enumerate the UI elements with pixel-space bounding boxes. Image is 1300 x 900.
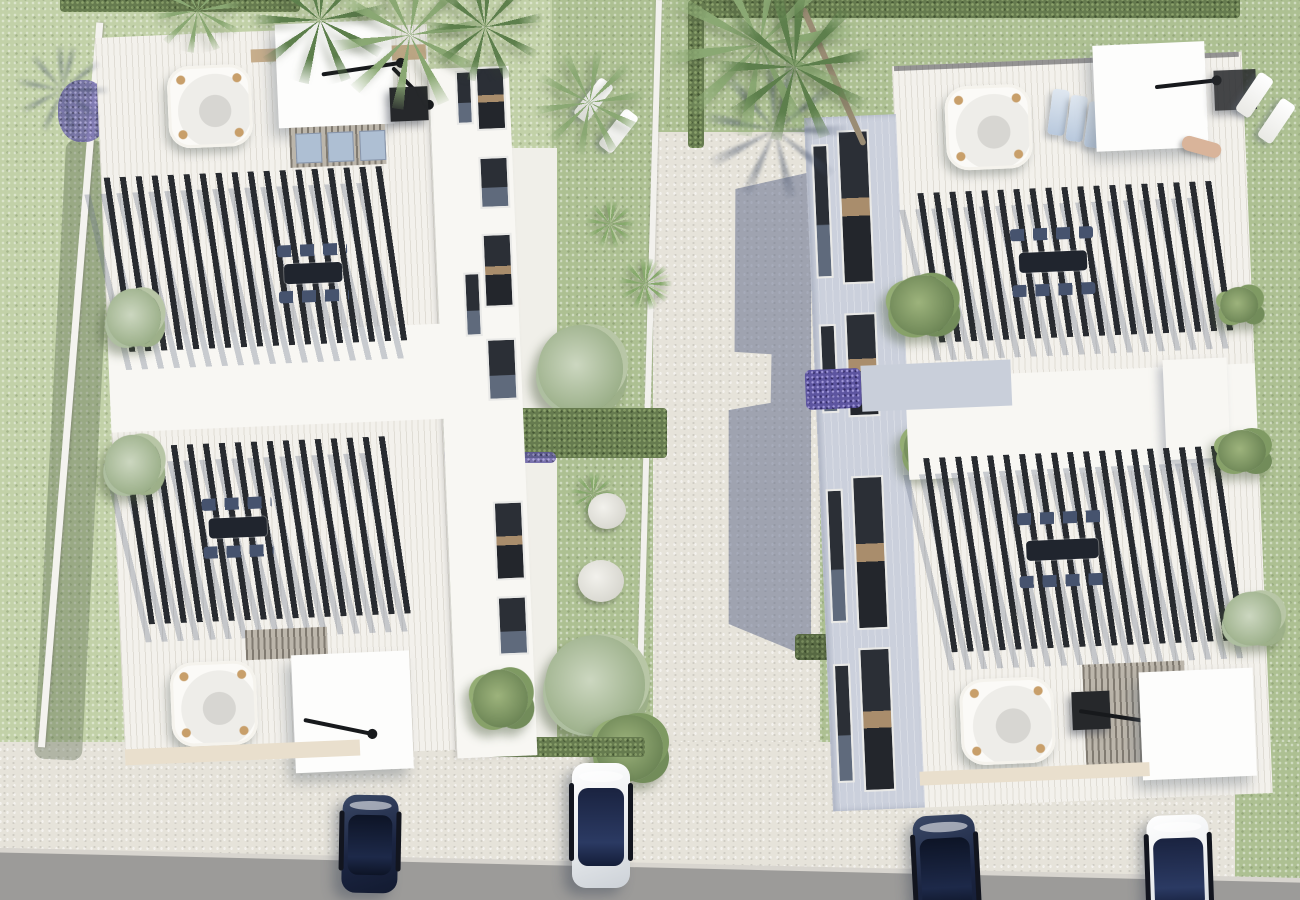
- dining-table: [284, 262, 342, 284]
- facade-window: [486, 338, 519, 401]
- car-windshield: [579, 771, 623, 782]
- hot-tub: [166, 64, 253, 149]
- left-villa: [95, 21, 537, 773]
- car-glass-roof: [578, 788, 624, 866]
- car-glass-roof: [919, 837, 973, 900]
- car-white-right: [1146, 814, 1212, 900]
- palm-tree: [532, 50, 647, 155]
- hot-tub: [959, 676, 1057, 766]
- skylight: [295, 133, 322, 164]
- hot-tub: [169, 660, 258, 748]
- aerial-villa-render: [0, 0, 1300, 900]
- car-glass-roof: [1153, 837, 1205, 900]
- facade-window: [497, 595, 529, 655]
- dining-set: [196, 496, 278, 559]
- car-navy-right: [912, 813, 980, 900]
- car-white-left: [572, 763, 630, 888]
- skylight: [359, 130, 386, 161]
- car-navy-left: [341, 795, 399, 894]
- facade-window: [478, 156, 510, 209]
- lavender-recess: [805, 368, 863, 410]
- car-windshield: [920, 821, 968, 834]
- shrub-right-edge: [1218, 430, 1266, 472]
- olive-tree: [538, 325, 623, 413]
- facade-window: [858, 647, 896, 792]
- shade-canopy: [1139, 668, 1257, 781]
- agave-plant: [585, 200, 635, 248]
- right-villa: [802, 52, 1273, 815]
- dining-set: [1011, 509, 1114, 588]
- agave-plant: [618, 258, 672, 310]
- facade-window: [851, 475, 889, 630]
- facade-window: [493, 500, 526, 580]
- dining-table: [1026, 538, 1099, 561]
- recess-path: [860, 360, 1012, 412]
- car-windshield: [349, 801, 392, 811]
- car-windshield: [1154, 821, 1201, 833]
- building-shadow-on-lane: [727, 172, 811, 658]
- hot-tub: [944, 83, 1033, 171]
- skylight: [327, 131, 354, 162]
- dining-set: [1004, 226, 1102, 298]
- dining-table: [1018, 250, 1087, 273]
- car-glass-roof: [347, 814, 392, 876]
- palm-shadow-on-grass: [15, 45, 110, 135]
- dining-set: [272, 242, 354, 303]
- stepping-stone: [588, 493, 626, 529]
- facade-window: [463, 272, 483, 337]
- facade-window: [482, 233, 515, 308]
- dining-table: [208, 516, 266, 538]
- stepping-stone: [578, 560, 624, 602]
